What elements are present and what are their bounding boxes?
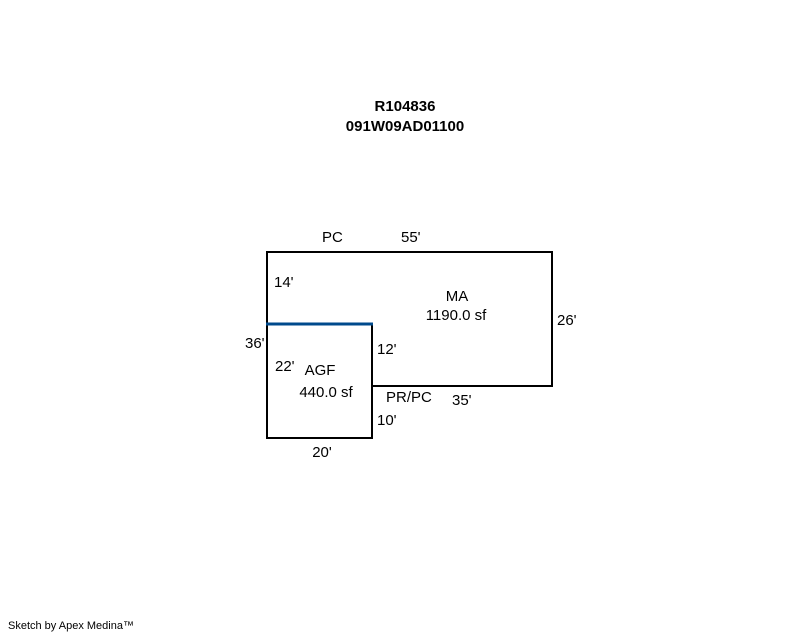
dimension-label-top-55: 55'	[401, 230, 421, 246]
sketch-page: R104836 091W09AD01100 PC 55' 14' 26' 36'…	[0, 0, 800, 640]
dimension-label-inner-10: 10'	[377, 413, 397, 429]
ma-area-size: 1190.0 sf	[426, 308, 487, 324]
dimension-label-upper-left-14: 14'	[274, 275, 294, 291]
ma-area-name: MA	[446, 289, 469, 305]
dimension-label-bottom-35: 35'	[452, 393, 472, 409]
agf-area-name: AGF	[305, 363, 336, 379]
agf-area-size: 440.0 sf	[299, 385, 352, 401]
dimension-label-agf-bottom-20: 20'	[312, 445, 332, 461]
sketch-canvas	[0, 0, 800, 640]
dimension-label-top-pc: PC	[322, 230, 343, 246]
dimension-label-bottom-prpc: PR/PC	[386, 390, 432, 406]
agf-area-outline	[267, 324, 372, 438]
dimension-label-agf-left-22: 22'	[275, 359, 295, 375]
sketch-credit: Sketch by Apex Medina™	[8, 620, 134, 632]
dimension-label-inner-12: 12'	[377, 342, 397, 358]
dimension-label-left-36: 36'	[245, 336, 265, 352]
dimension-label-right-26: 26'	[557, 313, 577, 329]
